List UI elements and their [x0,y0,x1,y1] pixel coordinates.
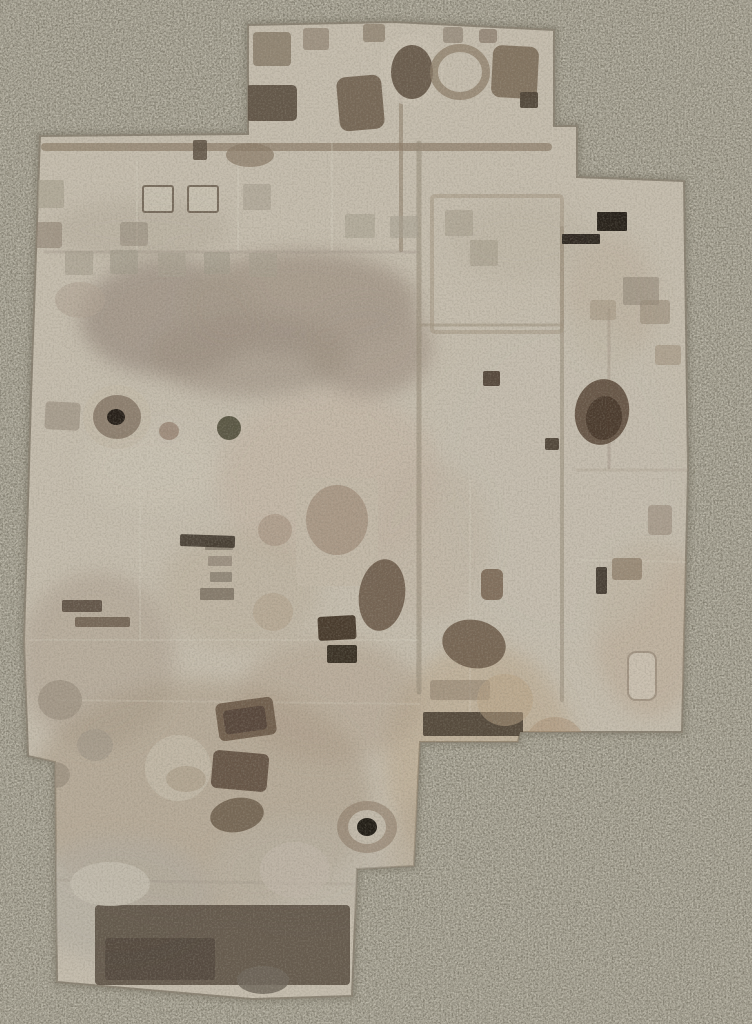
orthophoto-canvas [0,0,752,1024]
excavation-scene [0,0,752,1024]
global-grain-light [0,0,752,1024]
